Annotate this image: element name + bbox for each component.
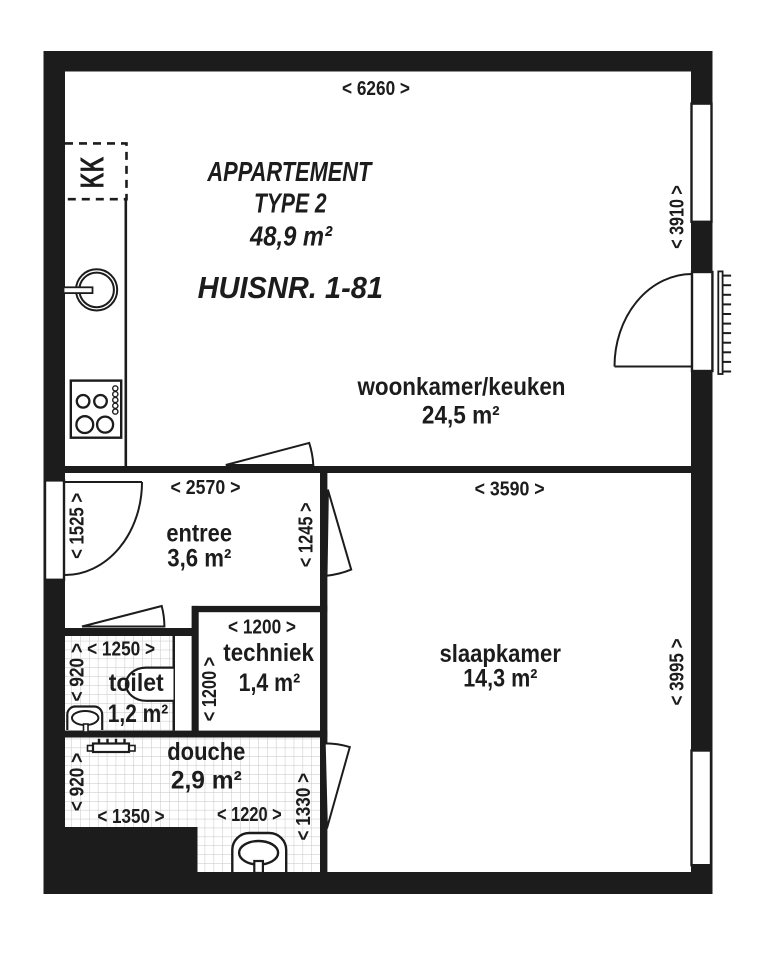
svg-text:1,4 m²: 1,4 m² [239,669,301,697]
svg-text:2,9 m²: 2,9 m² [171,767,242,795]
svg-text:< 1330 >: < 1330 > [292,773,315,841]
svg-text:TYPE 2: TYPE 2 [254,187,327,218]
svg-text:HUISNR. 1-81: HUISNR. 1-81 [198,270,383,305]
svg-text:< 2570 >: < 2570 > [171,476,241,499]
svg-text:< 920 >: < 920 > [65,753,88,812]
svg-text:3,6 m²: 3,6 m² [167,544,231,572]
svg-text:< 1200 >: < 1200 > [198,657,221,721]
svg-text:< 6260 >: < 6260 > [342,77,410,100]
svg-text:1,2 m²: 1,2 m² [108,700,169,728]
svg-text:< 1245 >: < 1245 > [294,502,317,567]
svg-text:< 1200 >: < 1200 > [228,615,296,638]
svg-text:24,5 m²: 24,5 m² [422,401,500,429]
svg-text:douche: douche [167,738,245,766]
svg-text:< 3590 >: < 3590 > [475,477,545,500]
svg-text:toilet: toilet [109,669,165,697]
svg-text:< 1250 >: < 1250 > [87,638,155,661]
svg-text:woonkamer/keuken: woonkamer/keuken [357,373,566,401]
svg-text:< 920 >: < 920 > [66,643,89,702]
svg-text:KK: KK [74,156,111,188]
svg-text:entree: entree [166,519,232,547]
svg-text:< 3995 >: < 3995 > [666,638,689,705]
svg-text:< 3910 >: < 3910 > [666,185,689,249]
svg-text:< 1350 >: < 1350 > [97,805,164,828]
svg-text:14,3 m²: 14,3 m² [463,665,537,693]
svg-text:APPARTEMENT: APPARTEMENT [207,156,374,187]
svg-text:techniek: techniek [223,639,314,667]
svg-text:48,9 m²: 48,9 m² [249,221,332,252]
svg-text:< 1220 >: < 1220 > [217,803,282,826]
svg-text:< 1525 >: < 1525 > [66,493,89,559]
